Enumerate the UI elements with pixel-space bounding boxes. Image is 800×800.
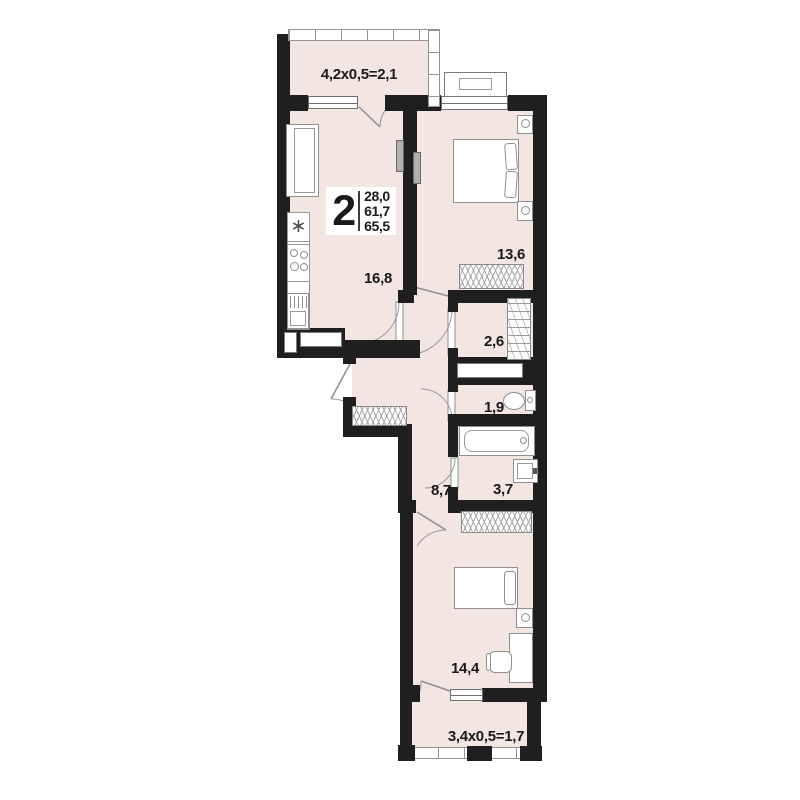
- washbasin-inner: [517, 463, 533, 479]
- area-label-bedroom-2: 14,4: [441, 660, 489, 677]
- area-label-kitchen-living: 16,8: [356, 270, 400, 287]
- balcony-top-glazing-top: [288, 29, 440, 41]
- sofa-seat: [294, 128, 315, 193]
- balcony-bottom-corner-left: [398, 745, 415, 761]
- closet-wall-stub-top: [448, 303, 458, 312]
- balcony-bottom-mid-pier: [467, 746, 492, 761]
- pillow: [504, 571, 516, 605]
- area-label-balcony-top: 4,2х0,5=2,1: [299, 66, 419, 83]
- hallway-wardrobe: [352, 406, 407, 426]
- bathtub-drain: [520, 437, 527, 444]
- stove-burner: [300, 263, 308, 271]
- bedroom-1-window: [441, 96, 508, 110]
- radiator: [413, 152, 421, 184]
- area-label-hallway: 8,7: [421, 482, 461, 499]
- nightstand-lamp: [521, 613, 530, 622]
- washbasin-tap: [533, 468, 537, 474]
- area-label-bedroom-1: 13,6: [485, 246, 537, 263]
- stove-burner: [300, 251, 308, 259]
- bedroom-2-window: [450, 689, 483, 701]
- ventilation-shaft-small: [284, 332, 297, 353]
- fridge-inner: [290, 311, 306, 326]
- area-label-wc: 1,9: [474, 399, 514, 416]
- bathroom-wall-stub-top: [448, 424, 458, 457]
- sink-icon: ∗: [287, 213, 310, 241]
- hallway-left-wall: [398, 424, 412, 512]
- radiator: [396, 140, 404, 172]
- unit-rooms-count: 2: [332, 189, 355, 233]
- unit-living-area: 28,0: [364, 189, 390, 204]
- pillow: [504, 143, 518, 171]
- desk: [509, 633, 533, 683]
- balcony-top-glazing-right: [428, 29, 440, 107]
- pillow: [504, 171, 518, 199]
- balcony-bottom-corner-right: [520, 746, 542, 761]
- ac-unit-vent: [459, 78, 492, 90]
- chair: [489, 651, 512, 673]
- nightstand-lamp: [521, 119, 530, 128]
- nightstand-lamp: [521, 206, 530, 215]
- kitchen-bottom-wall-right: [345, 340, 420, 358]
- unit-info-badge: 2 28,0 61,7 65,5: [326, 187, 396, 235]
- area-label-balcony-bottom: 3,4х0,5=1,7: [426, 728, 546, 745]
- unit-apartment-area: 61,7: [364, 204, 390, 219]
- wardrobe: [461, 511, 532, 533]
- ventilation-shaft-wide: [300, 332, 342, 347]
- bedroom-1-bottom-wall-stub: [398, 290, 414, 303]
- fridge-coil: [290, 296, 307, 308]
- area-label-bathroom: 3,7: [483, 481, 523, 498]
- unit-total-area: 65,5: [364, 219, 390, 234]
- wc-wall-stub-top: [448, 385, 458, 392]
- wardrobe: [459, 264, 524, 289]
- toilet-button: [527, 397, 533, 403]
- service-duct: [457, 363, 523, 378]
- badge-divider: [358, 191, 360, 231]
- area-label-closet: 2,6: [474, 333, 514, 350]
- closet-shelving: [507, 298, 531, 360]
- balcony-bottom-left-wall: [400, 700, 412, 750]
- entrance-door-leaf: [331, 362, 351, 399]
- bedroom-2-left-wall: [400, 512, 413, 692]
- entrance-wall-stub: [343, 355, 356, 364]
- floor-plan: ∗ 4,2х0,5=2,1 2 28,0 61,7 65,5: [0, 0, 800, 800]
- kitchen-top-wall-left: [277, 95, 308, 111]
- bedroom-2-bottom-wall-right: [482, 688, 533, 702]
- stove-burner: [290, 249, 298, 257]
- kitchen-window: [308, 96, 358, 109]
- stove-burner: [290, 262, 299, 271]
- partition-kitchen-bedroom: [403, 100, 417, 295]
